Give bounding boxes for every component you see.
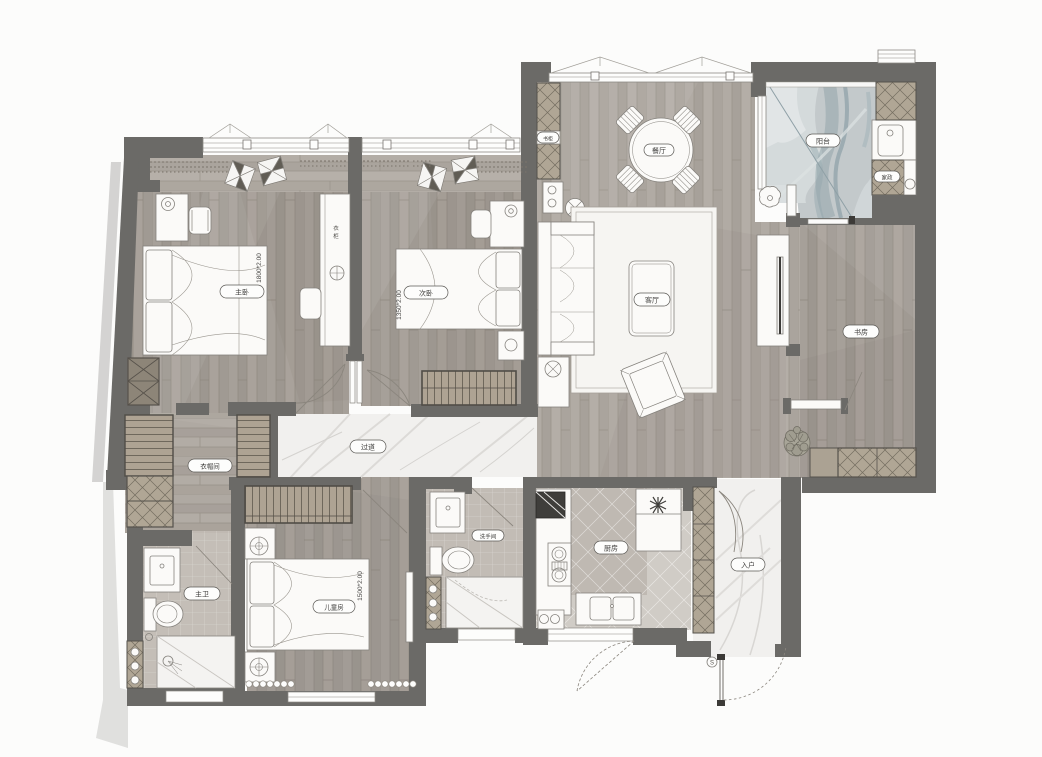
svg-text:书柜: 书柜 xyxy=(543,136,553,143)
svg-text:柜: 柜 xyxy=(333,232,339,240)
svg-text:书房: 书房 xyxy=(854,328,868,337)
svg-text:主卧: 主卧 xyxy=(235,288,249,297)
svg-text:家政: 家政 xyxy=(881,174,893,182)
svg-text:主卫: 主卫 xyxy=(195,590,209,599)
svg-text:厨房: 厨房 xyxy=(604,544,618,553)
svg-text:餐厅: 餐厅 xyxy=(652,146,666,155)
svg-text:洗手间: 洗手间 xyxy=(480,533,497,541)
svg-text:儿童房: 儿童房 xyxy=(324,603,344,612)
svg-text:S: S xyxy=(710,661,714,667)
svg-text:1800*2.00: 1800*2.00 xyxy=(256,253,263,283)
svg-text:过道: 过道 xyxy=(361,443,375,452)
svg-text:1500*2.00: 1500*2.00 xyxy=(357,571,364,601)
svg-text:客厅: 客厅 xyxy=(645,296,659,305)
svg-text:阳台: 阳台 xyxy=(816,137,830,146)
svg-text:衣: 衣 xyxy=(333,224,339,232)
svg-text:衣帽间: 衣帽间 xyxy=(200,462,220,471)
svg-text:1350*2.00: 1350*2.00 xyxy=(396,290,403,320)
svg-text:次卧: 次卧 xyxy=(419,289,433,298)
svg-text:入户: 入户 xyxy=(741,561,755,570)
